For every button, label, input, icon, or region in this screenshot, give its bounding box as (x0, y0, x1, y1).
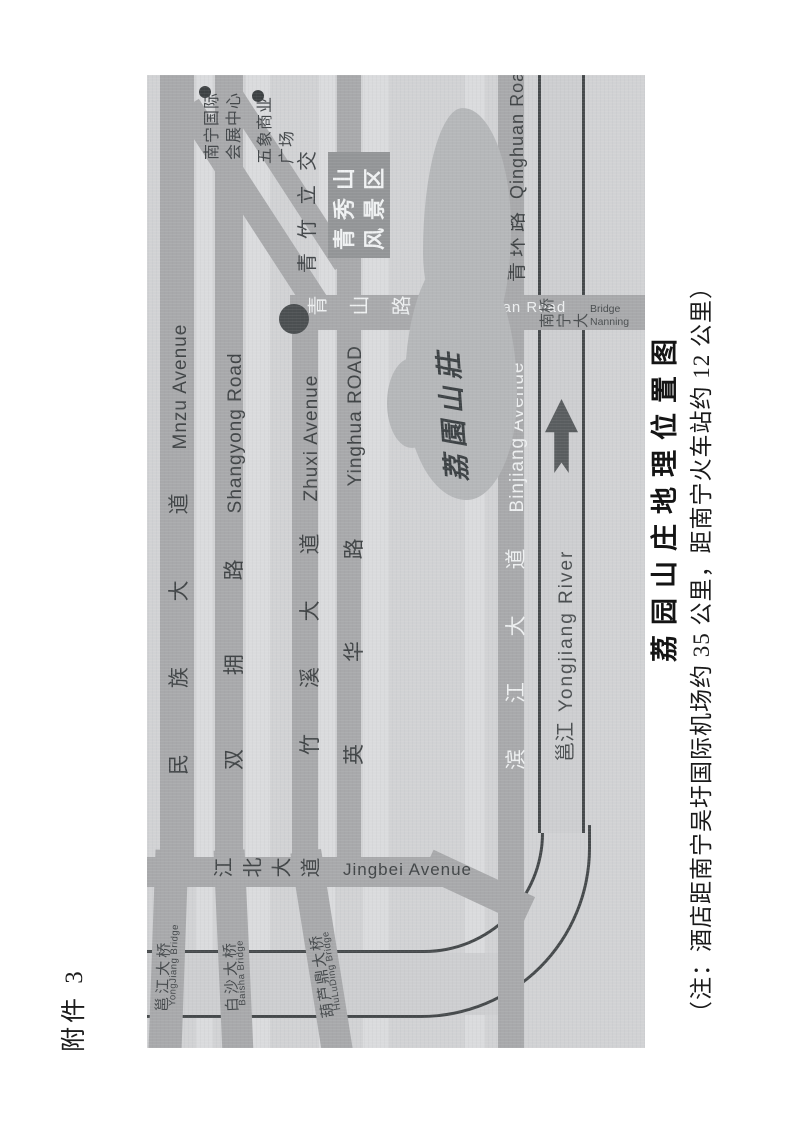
convention-center-label-line1: 南宁国际 (198, 92, 222, 160)
qingzhu-interchange-dot (279, 304, 309, 334)
yongjiang-river: 邕江Yongjiang River (538, 75, 585, 833)
nanning-bridge-label: 南宁大桥 Nanning Bridge (539, 299, 645, 329)
scanned-page: 附件 3 邕江Yongjiang River (0, 0, 807, 1140)
shangyong-road-label: 双 拥 路Shangyong Road (218, 352, 248, 770)
wuxiang-plaza-label-line2: 广场 (273, 130, 297, 164)
attachment-label: 附件 3 (54, 967, 90, 1052)
location-map: 邕江Yongjiang River 邕江大桥 YongJiang Bridge … (147, 75, 645, 1048)
baisha-bridge-label-en: Baisha Bridge (235, 940, 249, 1006)
wuxiang-plaza-dot (252, 90, 264, 102)
wuxiang-plaza-label-line1: 五象商业 (251, 96, 275, 164)
distance-note: （注：酒店距南宁吴圩国际机场约 35 公里，距南宁火车站约 12 公里） (682, 275, 716, 1024)
qingxiushan-scenic-area: 青秀山 风景区 (328, 152, 390, 258)
scenic-label-line2: 风景区 (360, 152, 390, 250)
nanning-bridge-label-zh: 南宁大桥 (539, 299, 590, 329)
yongjiang-bridge: 邕江大桥 YongJiang Bridge (148, 849, 188, 1048)
yongjiang-bridge-label-en: YongJiang Bridge (167, 924, 181, 1006)
zhuxi-avenue-label: 竹 溪 大 道Zhuxi Avenue (294, 375, 324, 755)
nanning-bridge-label-en: Nanning Bridge (590, 299, 645, 329)
minzu-avenue-label: 民 族 大 道Mnzu Avenue (163, 324, 193, 775)
yinghua-road-label: 英 华 路Yinghua ROAD (338, 345, 368, 765)
river-label: 邕江Yongjiang River (549, 550, 578, 762)
river-label-en: Yongjiang River (556, 550, 577, 712)
convention-center-dot (199, 86, 211, 98)
map-caption: 荔园山庄地理位置图 (643, 329, 682, 662)
scenic-label-line1: 青秀山 (330, 152, 360, 250)
jingbei-avenue-label: 江北大道Jingbei Avenue (213, 855, 472, 884)
river-label-zh: 邕江 (555, 722, 577, 762)
river-flow-arrow-icon (545, 399, 578, 473)
convention-center-label-line2: 会展中心 (220, 92, 244, 160)
